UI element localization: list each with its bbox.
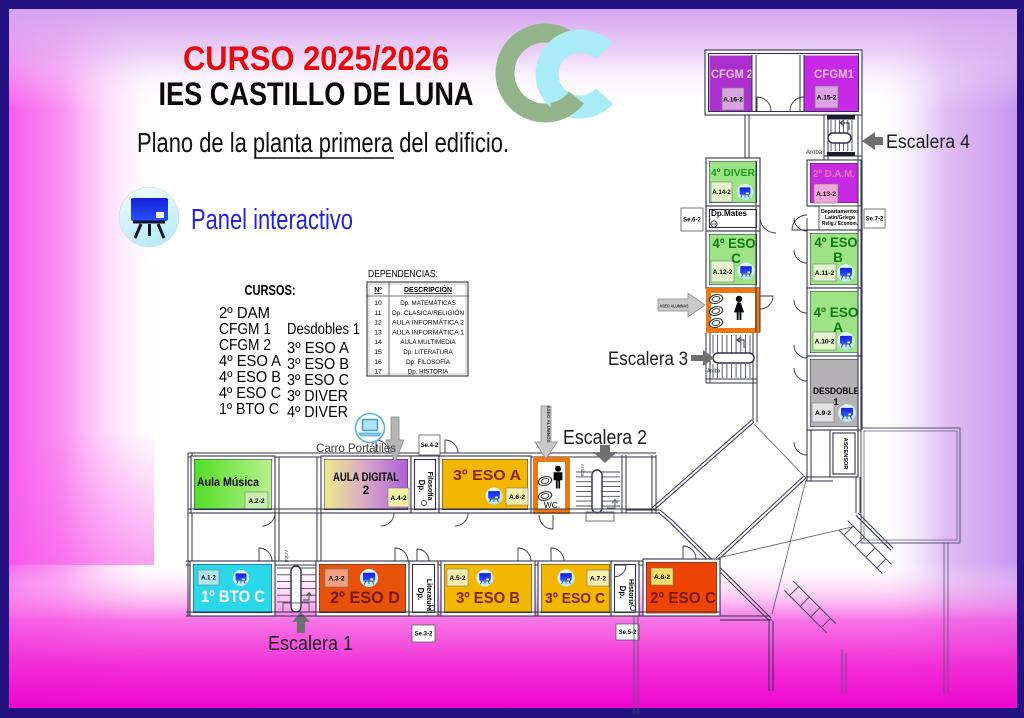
svg-text:CURSO 2025/2026: CURSO 2025/2026 xyxy=(183,40,449,78)
svg-text:1: 1 xyxy=(833,397,839,408)
svg-text:11: 11 xyxy=(374,310,381,317)
svg-text:Desdobles 1: Desdobles 1 xyxy=(287,321,360,338)
svg-text:AULA MULTIMEDIA: AULA MULTIMEDIA xyxy=(400,339,456,346)
svg-text:3º ESO B: 3º ESO B xyxy=(287,356,349,373)
svg-text:2º DAM: 2º DAM xyxy=(219,305,270,322)
svg-text:A.2-2: A.2-2 xyxy=(248,498,264,505)
svg-text:4º ESO: 4º ESO xyxy=(713,236,756,251)
svg-text:4º DIVER: 4º DIVER xyxy=(287,404,348,421)
svg-text:Arriba: Arriba xyxy=(580,464,585,477)
svg-text:A.5-2: A.5-2 xyxy=(449,575,465,582)
svg-text:17: 17 xyxy=(374,369,382,376)
svg-text:3º ESO A: 3º ESO A xyxy=(453,467,521,484)
svg-text:Dp. HISTORIA: Dp. HISTORIA xyxy=(408,369,449,376)
svg-text:Escalera 4: Escalera 4 xyxy=(886,132,970,153)
svg-text:A.15-2: A.15-2 xyxy=(817,94,837,101)
svg-text:2º ESO C: 2º ESO C xyxy=(650,590,716,607)
svg-text:Literatura: Literatura xyxy=(425,579,432,611)
svg-text:A.10-2: A.10-2 xyxy=(815,338,835,345)
svg-text:Dp. FILOSOFÍA: Dp. FILOSOFÍA xyxy=(406,359,451,366)
svg-text:A.11-2: A.11-2 xyxy=(815,270,835,277)
svg-text:A.12-2: A.12-2 xyxy=(713,269,733,276)
svg-text:B: B xyxy=(833,250,843,265)
svg-text:Dp.Mates: Dp.Mates xyxy=(711,208,747,218)
svg-text:4º ESO: 4º ESO xyxy=(814,304,859,320)
svg-text:A.8-2: A.8-2 xyxy=(654,574,670,581)
svg-text:16: 16 xyxy=(374,359,382,366)
svg-text:Aula Música: Aula Música xyxy=(197,477,260,489)
svg-text:15: 15 xyxy=(374,349,382,356)
svg-text:DESCRIPCIÓN: DESCRIPCIÓN xyxy=(404,285,452,294)
svg-text:DEPENDENCIAS:: DEPENDENCIAS: xyxy=(368,268,438,280)
svg-text:12: 12 xyxy=(374,320,382,327)
svg-text:Dp.: Dp. xyxy=(618,586,627,599)
svg-text:AULA INFORMÁTICA 2: AULA INFORMÁTICA 2 xyxy=(392,320,465,327)
svg-text:CFGM 2: CFGM 2 xyxy=(219,337,271,354)
svg-text:A.1-2: A.1-2 xyxy=(201,576,216,582)
svg-text:4º ESO C: 4º ESO C xyxy=(219,385,281,402)
svg-text:A.7-2: A.7-2 xyxy=(590,575,606,582)
svg-text:3º ESO A: 3º ESO A xyxy=(287,340,350,357)
svg-text:Dp. CLASICA/RELIGIÓN: Dp. CLASICA/RELIGIÓN xyxy=(392,310,464,317)
svg-text:Historia: Historia xyxy=(627,579,634,605)
svg-text:3º ESO C: 3º ESO C xyxy=(545,590,605,607)
svg-text:13: 13 xyxy=(374,329,382,336)
svg-text:A.4-2: A.4-2 xyxy=(390,495,406,502)
svg-text:CFGM 2: CFGM 2 xyxy=(711,67,753,81)
svg-text:AULA INFORMÁTICA 1: AULA INFORMÁTICA 1 xyxy=(392,329,465,336)
svg-text:Filosofía: Filosofía xyxy=(426,472,433,501)
svg-text:A.16-2: A.16-2 xyxy=(723,96,743,103)
svg-text:Arriba: Arriba xyxy=(284,550,289,563)
svg-text:4º ESO: 4º ESO xyxy=(815,235,858,250)
svg-text:3º DIVER: 3º DIVER xyxy=(287,388,348,405)
svg-text:CFGM 1: CFGM 1 xyxy=(219,321,271,338)
svg-text:C: C xyxy=(731,251,741,266)
svg-text:A.6-2: A.6-2 xyxy=(509,494,525,501)
svg-text:ASEO ALUMNAS: ASEO ALUMNAS xyxy=(660,304,689,309)
svg-text:2º D.A.M.: 2º D.A.M. xyxy=(813,168,855,180)
svg-text:ASEO ALUMNOS: ASEO ALUMNOS xyxy=(546,405,551,442)
svg-text:Dp.: Dp. xyxy=(416,588,425,601)
svg-text:Nº: Nº xyxy=(374,287,382,294)
svg-text:1º BTO C: 1º BTO C xyxy=(201,587,265,606)
svg-text:Arriba: Arriba xyxy=(806,150,823,156)
svg-text:Se.6-2: Se.6-2 xyxy=(683,218,701,224)
svg-text:Dp.: Dp. xyxy=(417,480,426,493)
svg-text:3º ESO C: 3º ESO C xyxy=(287,372,349,389)
svg-text:AULA DIGITAL: AULA DIGITAL xyxy=(333,472,399,484)
svg-text:CFGM1: CFGM1 xyxy=(814,67,854,81)
svg-text:Escalera 1: Escalera 1 xyxy=(268,633,353,655)
svg-text:2º ESO D: 2º ESO D xyxy=(330,589,400,607)
svg-text:A: A xyxy=(833,319,843,335)
svg-text:A.14-2: A.14-2 xyxy=(712,189,731,196)
svg-text:2: 2 xyxy=(363,485,369,497)
svg-text:4º ESO A: 4º ESO A xyxy=(219,353,282,370)
svg-text:Dp. LITERATURA: Dp. LITERATURA xyxy=(403,349,453,356)
svg-text:CURSOS:: CURSOS: xyxy=(245,282,296,299)
svg-text:ASCENSOR: ASCENSOR xyxy=(842,438,848,470)
svg-text:14: 14 xyxy=(374,339,382,346)
svg-text:10: 10 xyxy=(374,300,382,307)
svg-text:Se.7-2: Se.7-2 xyxy=(866,217,884,223)
svg-text:Relig./ Econom.: Relig./ Econom. xyxy=(822,221,859,227)
svg-text:Panel interactivo: Panel interactivo xyxy=(191,204,353,236)
svg-text:3º ESO B: 3º ESO B xyxy=(456,590,520,607)
svg-text:Arriba: Arriba xyxy=(707,369,721,375)
svg-text:Dp. MATEMÁTICAS: Dp. MATEMÁTICAS xyxy=(400,300,456,307)
svg-text:Plano de la planta primera del: Plano de la planta primera del edificio. xyxy=(137,127,509,158)
svg-text:A.9-2: A.9-2 xyxy=(815,410,831,417)
svg-text:DESDOBLE: DESDOBLE xyxy=(813,386,859,397)
svg-text:Se.4-2: Se.4-2 xyxy=(421,443,439,449)
svg-text:1º BTO C: 1º BTO C xyxy=(219,401,279,418)
svg-text:A.3-2: A.3-2 xyxy=(328,575,344,582)
svg-text:Escalera 3: Escalera 3 xyxy=(608,349,688,370)
svg-text:Se.3-2: Se.3-2 xyxy=(415,632,433,638)
svg-text:Carro Portátiles: Carro Portátiles xyxy=(316,443,396,455)
svg-text:IES CASTILLO DE LUNA: IES CASTILLO DE LUNA xyxy=(159,76,474,112)
svg-text:A.13-2: A.13-2 xyxy=(816,191,836,198)
svg-text:4º DIVER: 4º DIVER xyxy=(711,167,755,179)
svg-text:4º ESO B: 4º ESO B xyxy=(219,369,281,386)
